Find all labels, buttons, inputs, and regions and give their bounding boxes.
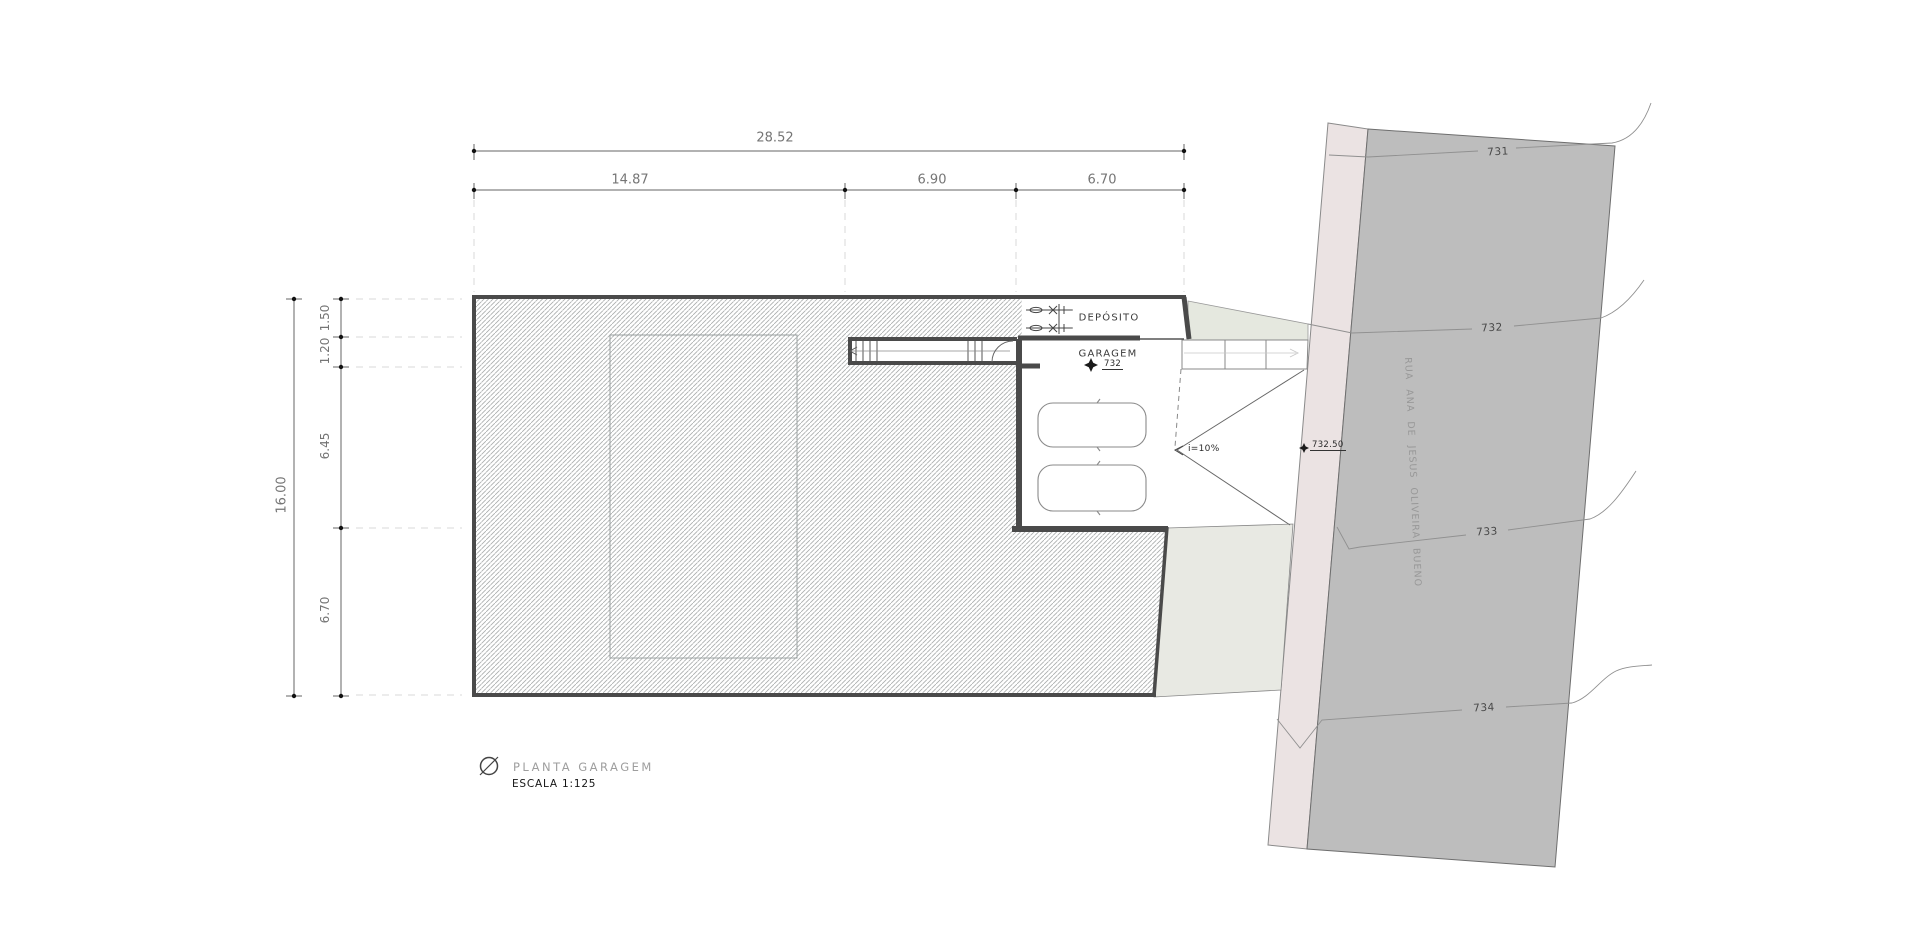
contour-label-734: 734 — [1473, 701, 1495, 714]
walkway-band — [1182, 340, 1308, 369]
dim-left-total: 16.00 — [275, 476, 290, 513]
dim-top-segment: 14.87 — [611, 173, 648, 188]
circle-slash-icon — [480, 757, 498, 775]
street-area — [1268, 103, 1652, 867]
dim-left-segment: 1.50 — [318, 305, 332, 332]
sheet-title: PLANTA GARAGEM — [513, 760, 654, 774]
contour-label-731: 731 — [1487, 145, 1509, 158]
dim-left-segment: 1.20 — [318, 338, 332, 365]
deposito-label: DEPÓSITO — [1079, 313, 1140, 324]
frontage-area — [1154, 301, 1308, 697]
garage-floor-plan-sheet: 28.52 14.87 6.90 6.70 16.00 1.50 1.20 6.… — [0, 0, 1920, 945]
dim-left-segment: 6.70 — [318, 597, 332, 624]
sheet-scale: ESCALA 1:125 — [512, 778, 596, 790]
garagem-level-value: 732 — [1102, 360, 1123, 370]
garage-room — [1022, 339, 1176, 526]
ramp-slope-label: i=10% — [1188, 444, 1220, 454]
garagem-label: GARAGEM — [1079, 349, 1138, 360]
lower-sidewalk — [1154, 524, 1293, 697]
dim-top-segment: 6.90 — [918, 173, 947, 188]
contour-label-733: 733 — [1476, 525, 1498, 538]
dim-top-total: 28.52 — [756, 131, 793, 146]
contour-label-732: 732 — [1481, 321, 1503, 334]
floor-plan-drawing — [0, 0, 1920, 945]
grass-verge — [1188, 301, 1308, 340]
street-level-value: 732.50 — [1310, 441, 1346, 451]
dim-left-segment: 6.45 — [318, 433, 332, 460]
dim-top-segment: 6.70 — [1088, 173, 1117, 188]
